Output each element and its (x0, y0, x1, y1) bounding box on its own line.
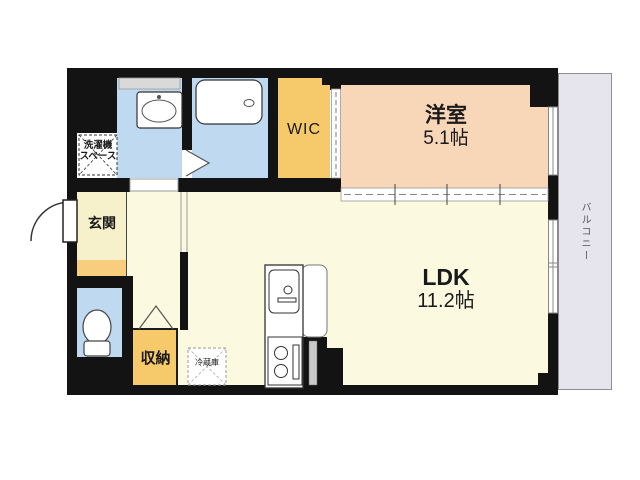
window-icon (549, 107, 558, 175)
toilet-icon (83, 310, 111, 356)
entry-door-icon (31, 200, 77, 242)
yoshitsu-ldk-door-icon (341, 184, 548, 205)
ldk-label: LDK 11.2帖 (376, 264, 516, 313)
hall-ldk-opening (181, 192, 187, 252)
refrigerator-label: 冷蔵庫 (188, 358, 226, 367)
bathtub-icon (196, 80, 262, 124)
wic-door-icon (332, 89, 341, 178)
storage-label: 収納 (133, 350, 178, 367)
genkan-label: 玄関 (79, 215, 125, 231)
floorplan: バルコニー (0, 0, 640, 480)
laundry-label: 洗濯機 スペース (74, 141, 122, 163)
yoshitsu-size: 5.1帖 (423, 128, 468, 149)
ldk-name: LDK (422, 264, 469, 290)
yoshitsu-name: 洋室 (425, 104, 467, 127)
yoshitsu-label: 洋室 5.1帖 (376, 104, 516, 150)
storage-door-icon (139, 306, 173, 329)
bath-door-icon (186, 150, 209, 176)
plan-details (0, 0, 640, 480)
kitchen-counter-icon (302, 265, 327, 337)
laundry-line1: 洗濯機 (84, 140, 113, 151)
laundry-line2: スペース (80, 151, 117, 162)
window-icon (549, 220, 558, 313)
washroom-door-icon (130, 179, 178, 191)
wic-label: WIC (278, 121, 330, 139)
stove-icon (268, 337, 317, 385)
vanity-sink-icon (137, 92, 182, 128)
ldk-size: 11.2帖 (417, 290, 474, 312)
top-window-icon (119, 78, 180, 89)
